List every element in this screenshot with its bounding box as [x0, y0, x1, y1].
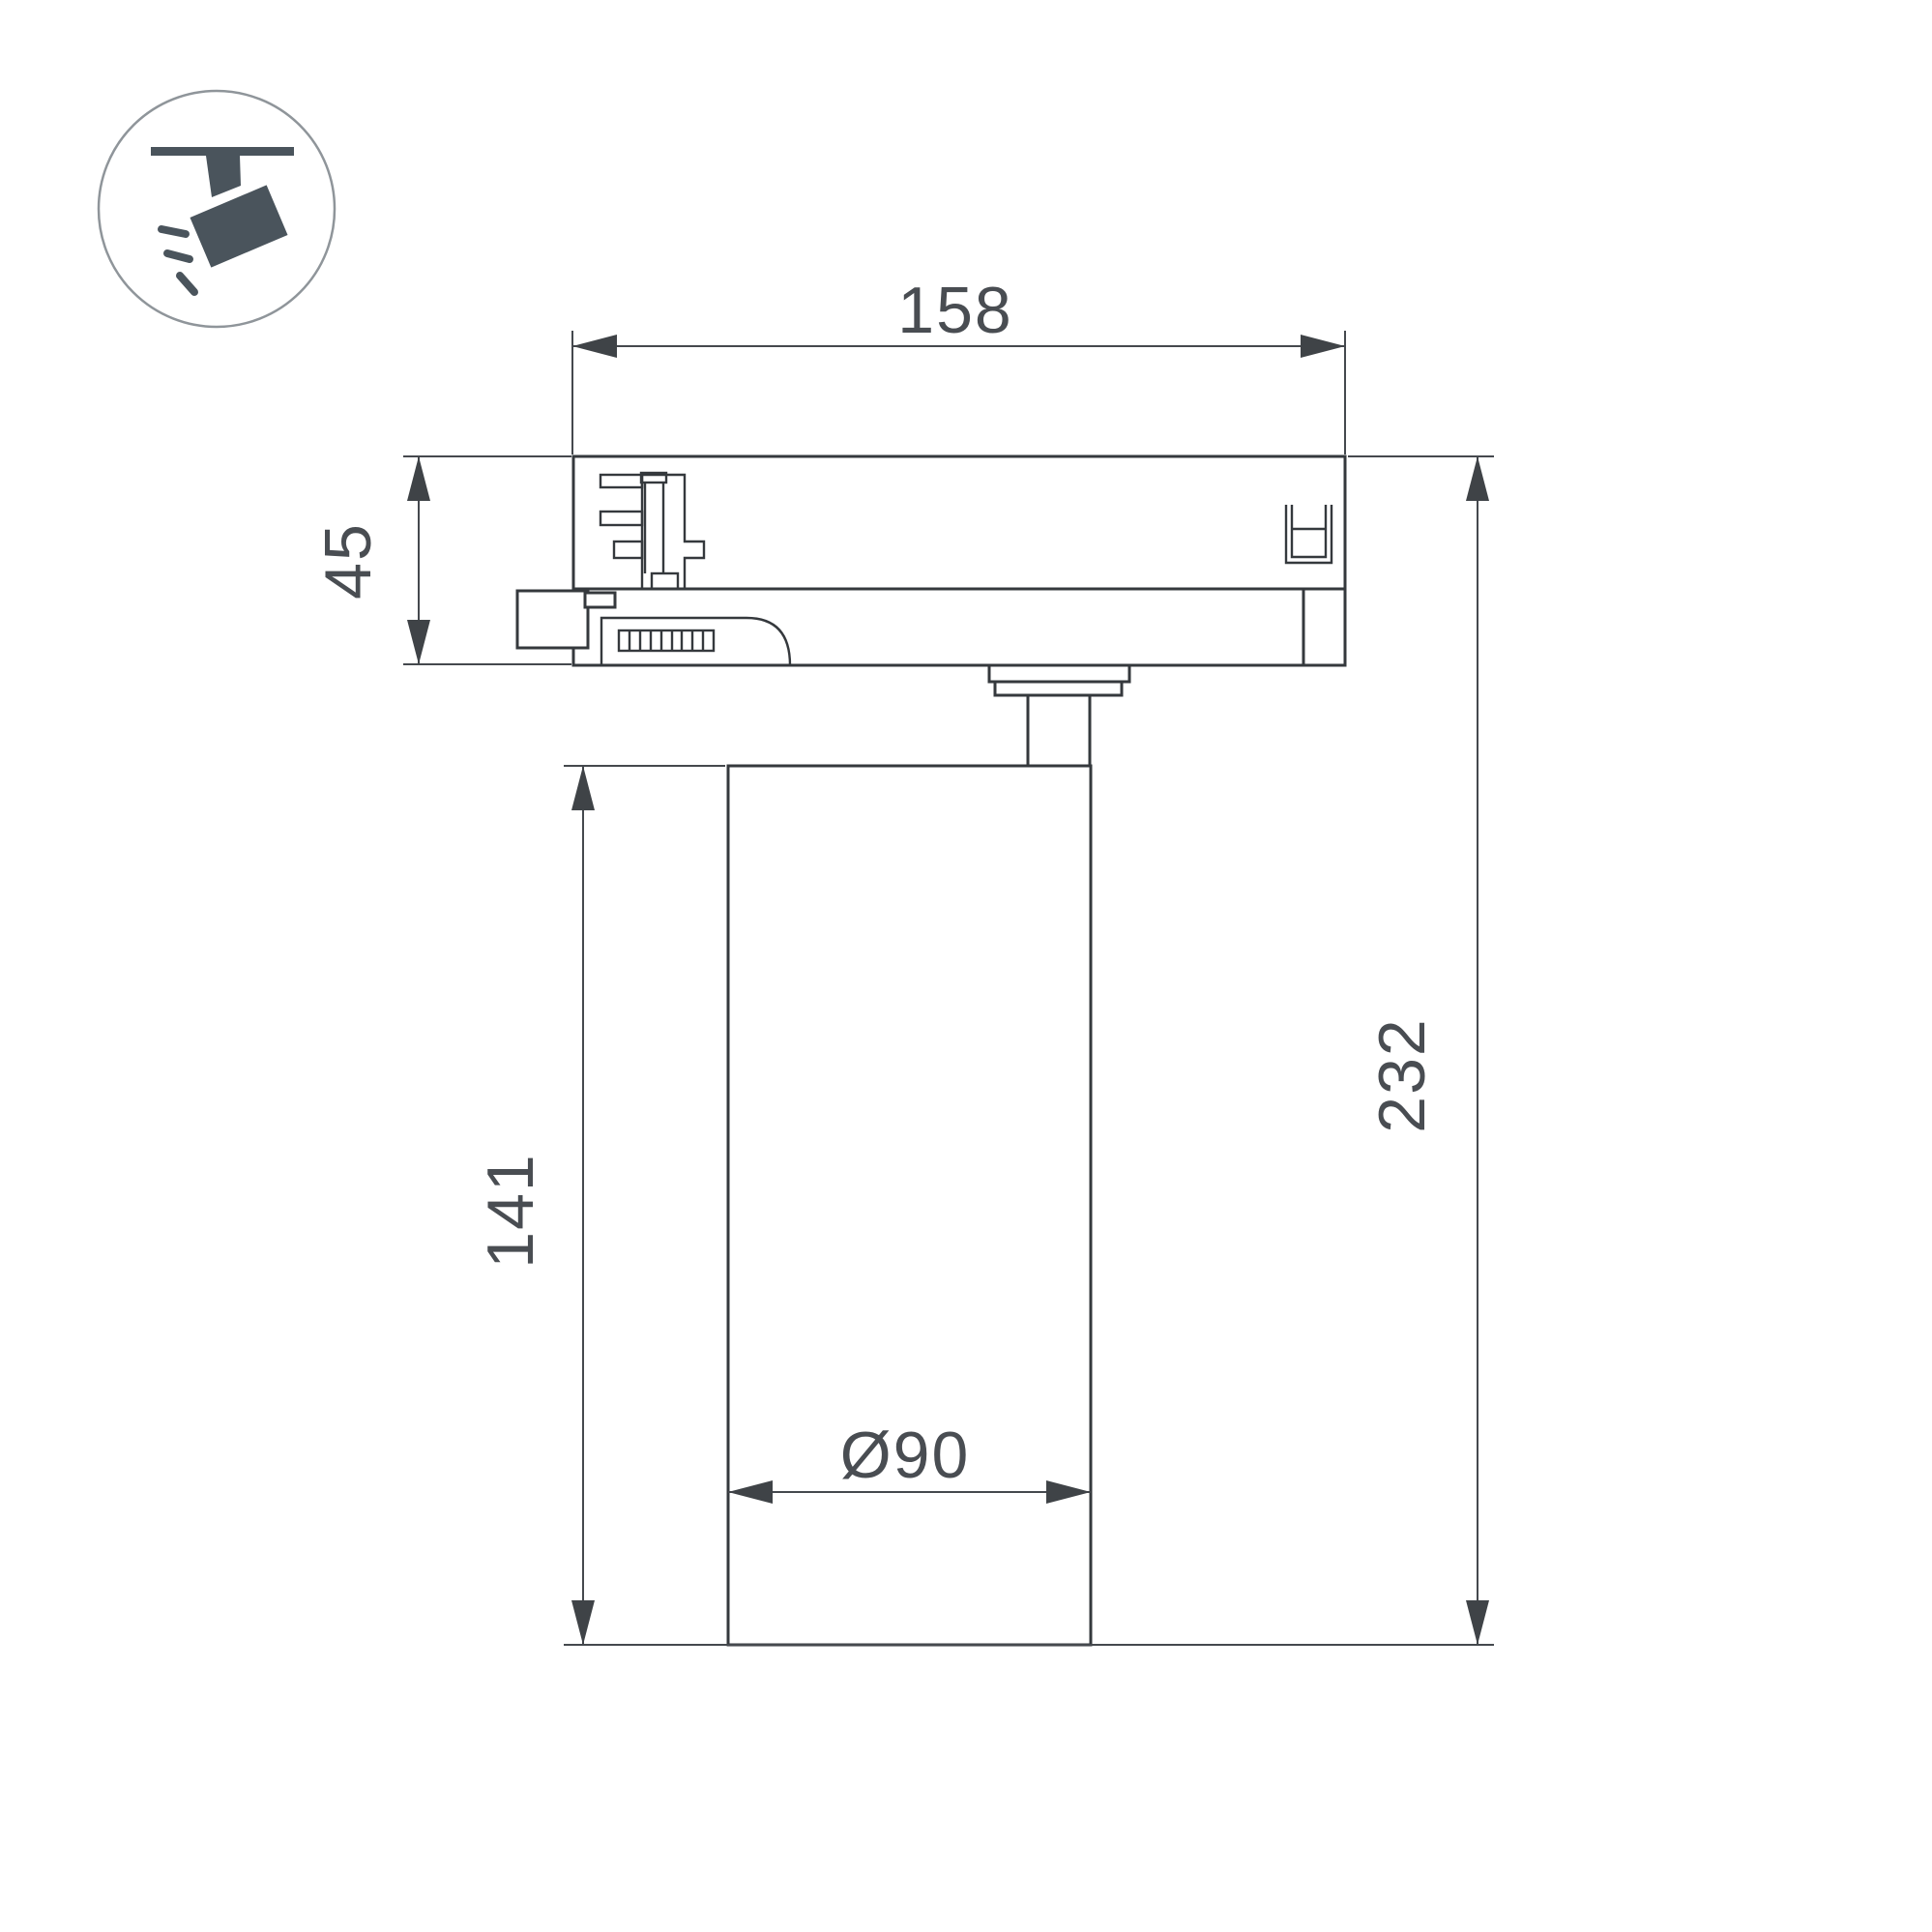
flange-details — [517, 591, 790, 665]
contact-body — [642, 475, 704, 589]
dimension-drawing: 158 45 232 141 — [0, 0, 1932, 1932]
arrowhead-up — [407, 456, 430, 501]
arrowhead-up — [571, 766, 595, 810]
locking-clip — [517, 591, 588, 648]
contact-block — [600, 473, 704, 589]
dimension-label-141: 141 — [474, 1153, 547, 1268]
stem — [1028, 695, 1090, 766]
clip-slot — [585, 593, 615, 607]
contact-rod-foot — [652, 573, 678, 589]
drawing-canvas: 158 45 232 141 — [0, 0, 1932, 1932]
arrowhead-up — [1466, 456, 1489, 501]
ratchet-teeth — [629, 630, 703, 651]
dimension-total-height: 232 — [1348, 456, 1494, 1645]
knuckle-step-1 — [989, 665, 1129, 682]
lamp-body — [728, 766, 1091, 1645]
dimension-adapter-width: 158 — [572, 274, 1345, 454]
arrowhead-right — [1301, 335, 1345, 358]
dimension-label-diameter: Ø90 — [840, 1419, 971, 1492]
track-spotlight-icon — [99, 91, 335, 327]
arrowhead-down — [1466, 1600, 1489, 1645]
arrowhead-left — [572, 335, 617, 358]
bracket-inner — [1292, 505, 1326, 557]
dimension-label-45: 45 — [311, 522, 385, 600]
arrowhead-down — [571, 1600, 595, 1645]
knuckle-step-2 — [995, 682, 1122, 695]
dimension-label-232: 232 — [1365, 1017, 1439, 1132]
adjustment-ratchet — [619, 630, 714, 651]
adapter-flange — [573, 589, 1345, 665]
contact-pin-3 — [614, 542, 642, 558]
dimension-label-158: 158 — [897, 274, 1012, 347]
ground-contact-bracket — [1286, 505, 1332, 563]
contact-pin-1 — [600, 475, 642, 487]
contact-pin-2 — [600, 512, 642, 525]
icon-track-bar — [151, 147, 294, 156]
arrowhead-down — [407, 620, 430, 664]
track-adapter — [517, 456, 1345, 665]
swivel-knuckle — [989, 665, 1129, 766]
icon-light-ray — [161, 229, 186, 234]
adapter-housing — [573, 456, 1345, 589]
